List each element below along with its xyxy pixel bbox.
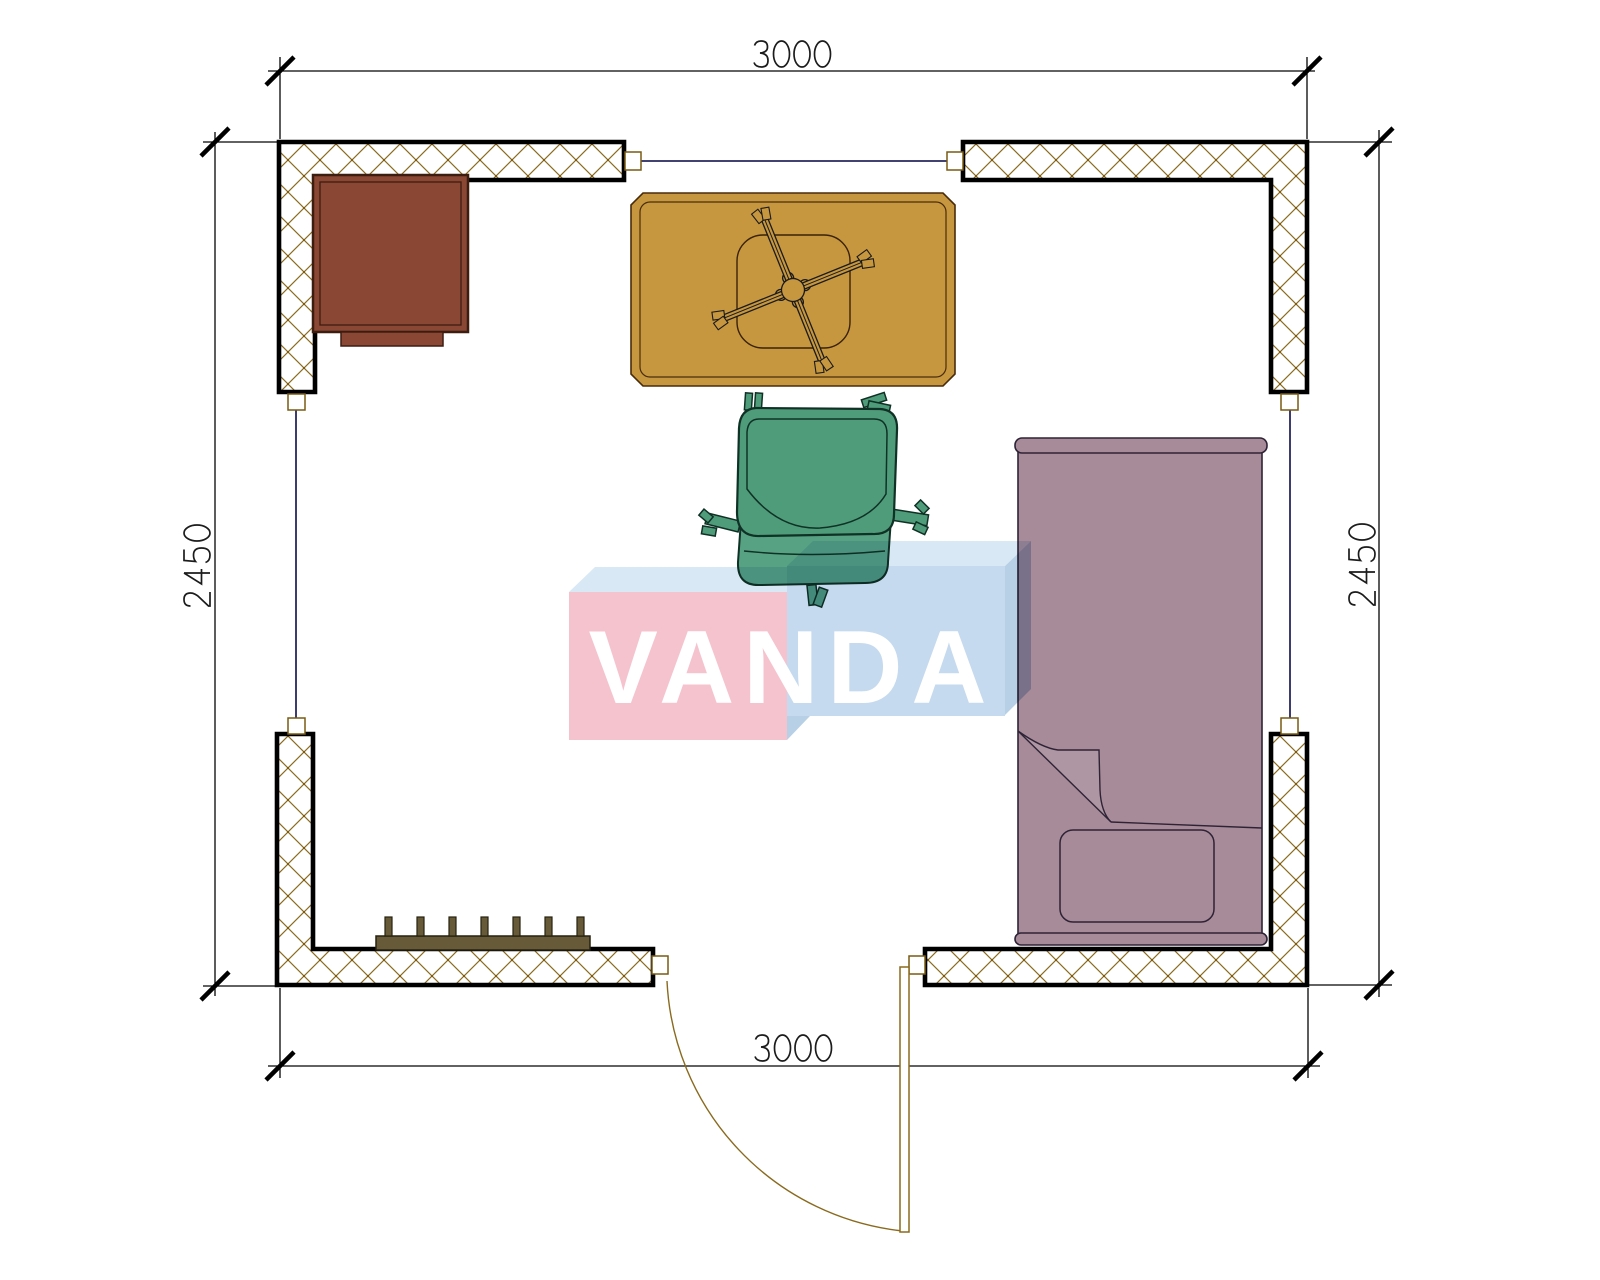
svg-text:VANDA: VANDA (588, 610, 995, 726)
